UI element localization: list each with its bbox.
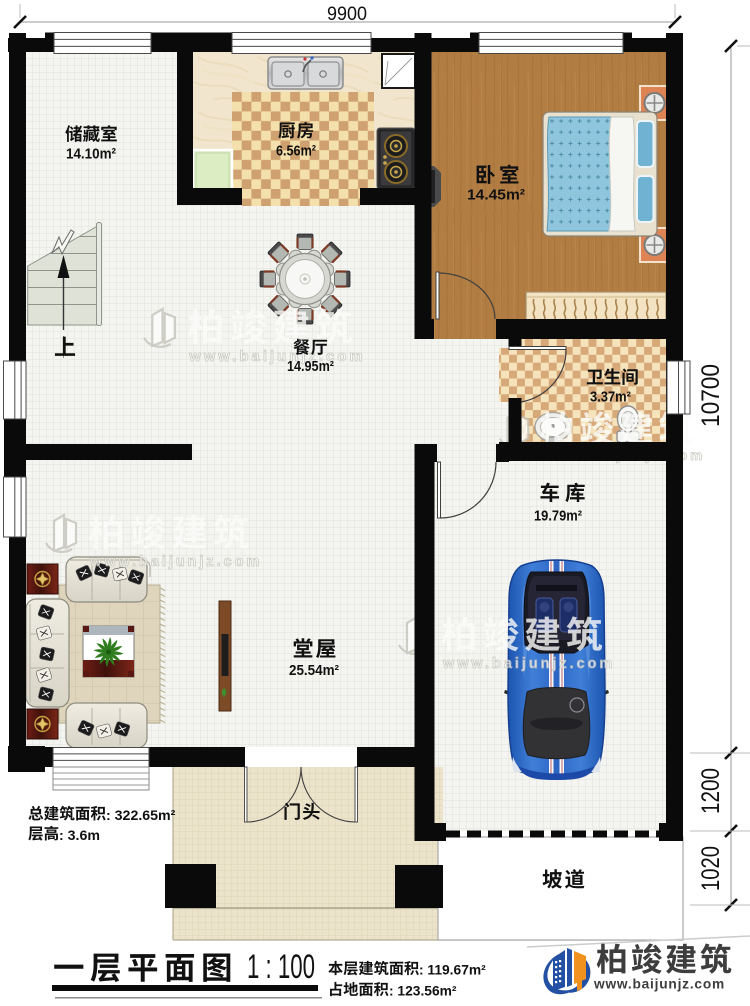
svg-text:6.56m²: 6.56m² [276, 143, 316, 160]
svg-text:25.54m²: 25.54m² [289, 663, 339, 679]
svg-text:10700: 10700 [697, 364, 725, 427]
svg-text:: 123.56m²: : 123.56m² [389, 984, 457, 999]
svg-text:14.45m²: 14.45m² [467, 187, 525, 204]
svg-text:: 322.65m²: : 322.65m² [106, 808, 176, 824]
svg-text:1 : 100: 1 : 100 [247, 948, 315, 986]
svg-text:9900: 9900 [327, 4, 367, 25]
svg-text:www.baijunjz.com: www.baijunjz.com [593, 976, 725, 992]
svg-text:14.10m²: 14.10m² [66, 146, 116, 163]
svg-text:www.baijunjz.com: www.baijunjz.com [442, 656, 615, 672]
svg-text:www.baijunjz.com: www.baijunjz.com [188, 349, 366, 365]
svg-text:1020: 1020 [697, 846, 725, 891]
svg-text:: 119.67m²: : 119.67m² [419, 963, 486, 978]
svg-text:3.37m²: 3.37m² [590, 390, 631, 406]
svg-text:: 3.6m: : 3.6m [59, 828, 100, 844]
svg-text:www.baijunjz.com: www.baijunjz.com [89, 554, 262, 570]
svg-text:14.95m²: 14.95m² [287, 359, 334, 375]
svg-text:19.79m²: 19.79m² [534, 509, 582, 525]
svg-text:1200: 1200 [697, 768, 725, 814]
